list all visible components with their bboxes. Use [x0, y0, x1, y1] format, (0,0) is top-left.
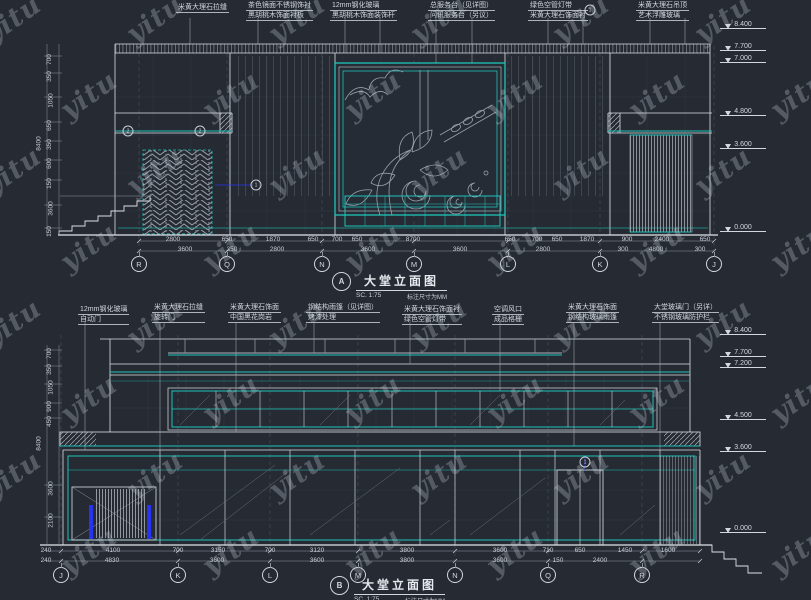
grid-bubble: J — [53, 567, 69, 583]
dimension-value: 3800 — [400, 547, 414, 554]
grid-bubble: R — [131, 256, 147, 272]
elevation-marker: 4.800 — [720, 108, 766, 116]
dimension-value: 650 — [222, 236, 233, 243]
annotation: 12mm钢化玻璃 黑胡桃木饰面装饰杆 — [330, 1, 397, 21]
dimension-value: 2800 — [270, 246, 284, 253]
dimension-value: 4800 — [649, 246, 663, 253]
dimension-value: 3600 — [361, 246, 375, 253]
elevation-marker: 7.700 — [720, 349, 766, 357]
annotation: 钢结构雨篷（见详图） 烤漆处理 — [306, 303, 380, 323]
elevation-marker: 0.000 — [720, 224, 766, 232]
dimension-value: 300 — [618, 246, 629, 253]
bottom-elevation — [40, 322, 762, 573]
elevation-marker: 8.400 — [720, 21, 766, 29]
annotation: 米黄大理石饰面 钢结构玻璃雨篷 — [566, 303, 619, 323]
dimension-value: 2400 — [655, 236, 669, 243]
annotation: 米黄大理石饰面 中国黑花岗岩 — [228, 303, 281, 323]
dimension-value: 2100 — [48, 513, 55, 527]
elevation-marker: 7.700 — [720, 43, 766, 51]
dimension-value: 650 — [575, 547, 586, 554]
dimension-value: 650 — [46, 120, 53, 131]
dimension-value: 8400 — [36, 136, 43, 150]
annotation: 大堂玻璃门（另详） 不锈钢玻璃防护栏 — [652, 303, 719, 323]
dimension-value: 8400 — [36, 436, 43, 450]
dimension-value: 700 — [46, 54, 53, 65]
cad-canvas: 米黄大理石拉缝 茶色镜面不锈钢饰衬 黑胡桃木饰面衬板 12mm钢化玻璃 黑胡桃木… — [0, 0, 811, 600]
drawing-title-text: 大堂立面图 — [354, 576, 445, 595]
elevation-marker: 3.600 — [720, 444, 766, 452]
grid-bubble: L — [500, 256, 516, 272]
dimension-value: 350 — [46, 139, 53, 150]
drawing-title-text: 大堂立面图 — [356, 272, 447, 291]
annotation: 总服务台（见详图） 问讯服务台（另议） — [428, 1, 495, 21]
dimension-value: 700 — [532, 236, 543, 243]
grid-bubble: K — [170, 567, 186, 583]
elevation-marker: 7.000 — [720, 55, 766, 63]
grid-bubble: N — [447, 567, 463, 583]
dimension-value: 350 — [227, 246, 238, 253]
grid-bubble: Q — [540, 567, 556, 583]
elevation-marker: 8.400 — [720, 327, 766, 335]
bottom-drawing-title: B 大堂立面图 SC. 1:75 标注尺寸为MM — [330, 576, 445, 600]
dimension-value: 300 — [695, 246, 706, 253]
dimension-value: 650 — [505, 236, 516, 243]
dimension-value: 450 — [46, 416, 53, 427]
dimension-value: 900 — [622, 236, 633, 243]
dimension-value: 350 — [46, 364, 53, 375]
drawing-note: 标注尺寸为MM — [405, 596, 445, 600]
dimension-value: 1050 — [48, 380, 55, 394]
top-drawing-title: A 大堂立面图 SC. 1:75 标注尺寸为MM — [332, 272, 447, 301]
dimension-value: 3150 — [211, 547, 225, 554]
dimension-value: 4830 — [105, 557, 119, 564]
title-bubble-icon: A — [332, 272, 351, 291]
dimension-value: 3600 — [493, 547, 507, 554]
detail-marker-icon: 2 — [123, 126, 134, 137]
elevation-marker: 7.200 — [720, 360, 766, 368]
dimension-value: 3600 — [210, 557, 224, 564]
dimension-value: 710 — [543, 547, 554, 554]
annotation: 空调风口 成品格栅 — [492, 305, 524, 325]
dimension-value: 3600 — [48, 201, 55, 215]
dimension-value: 1870 — [580, 236, 594, 243]
dimension-value: 600 — [46, 158, 53, 169]
annotation: 米黄大理石拉缝 旋转门 — [152, 303, 205, 323]
detail-marker-icon: 1 — [585, 5, 596, 16]
drawing-note: 标注尺寸为MM — [407, 292, 447, 301]
title-bubble-icon: B — [330, 576, 349, 595]
dimension-value: 1050 — [48, 93, 55, 107]
elevation-marker: 0.000 — [720, 525, 766, 533]
grid-bubble: M — [406, 256, 422, 272]
top-elevation — [44, 18, 718, 253]
dimension-value: 8700 — [406, 236, 420, 243]
dimension-value: 3600 — [310, 557, 324, 564]
dimension-value: 3600 — [453, 246, 467, 253]
drawing-scale: SC. 1:75 — [356, 292, 381, 301]
dimension-value: 3600 — [48, 481, 55, 495]
detail-marker-icon: 2 — [195, 126, 206, 137]
elevation-marker: 3.600 — [720, 141, 766, 149]
dimension-value: 3600 — [178, 246, 192, 253]
dimension-value: 650 — [552, 236, 563, 243]
dimension-value: 1870 — [266, 236, 280, 243]
grid-bubble: K — [592, 256, 608, 272]
annotation: 米黄大理石饰面衬 绿色空管灯带 — [402, 305, 462, 325]
dimension-value: 2800 — [166, 236, 180, 243]
dimension-value: 350 — [46, 71, 53, 82]
dimension-value: 2400 — [593, 557, 607, 564]
dimension-value: 240 — [41, 557, 52, 564]
annotation: 米黄大理石拉缝 — [176, 3, 229, 13]
grid-bubble: L — [262, 567, 278, 583]
grid-bubble: Q — [219, 256, 235, 272]
annotation: 米黄大理石吊顶 艺术浮雕玻璃 — [636, 1, 689, 21]
dimension-value: 700 — [46, 348, 53, 359]
drawing-scale: SC. 1:75 — [354, 596, 379, 600]
dimension-value: 650 — [308, 236, 319, 243]
dimension-value: 650 — [700, 236, 711, 243]
dimension-value: 240 — [41, 547, 52, 554]
dimension-value: 3600 — [493, 557, 507, 564]
dimension-value: 1450 — [618, 547, 632, 554]
dimension-value: 3120 — [310, 547, 324, 554]
dimension-value: 3800 — [400, 557, 414, 564]
dimension-value: 4100 — [106, 547, 120, 554]
dimension-value: 650 — [352, 236, 363, 243]
dimension-value: 700 — [332, 236, 343, 243]
dimension-value: 700 — [265, 547, 276, 554]
elevation-marker: 4.500 — [720, 412, 766, 420]
detail-marker-icon: 1 — [580, 457, 591, 468]
detail-marker-icon: 1 — [251, 180, 262, 191]
dimension-value: 900 — [46, 401, 53, 412]
dimension-value: 150 — [46, 226, 53, 237]
dimension-value: 700 — [173, 547, 184, 554]
dimension-value: 2800 — [536, 246, 550, 253]
annotation: 绿色空管灯带 米黄大理石饰面衬 — [528, 1, 588, 21]
grid-bubble: R — [634, 567, 650, 583]
annotation: 茶色镜面不锈钢饰衬 黑胡桃木饰面衬板 — [246, 1, 313, 21]
dimension-value: 150 — [553, 557, 564, 564]
dimension-value: 150 — [46, 178, 53, 189]
annotation: 12mm钢化玻璃 自动门 — [78, 305, 129, 325]
dimension-value: 1600 — [661, 547, 675, 554]
grid-bubble: J — [706, 256, 722, 272]
grid-bubble: N — [314, 256, 330, 272]
